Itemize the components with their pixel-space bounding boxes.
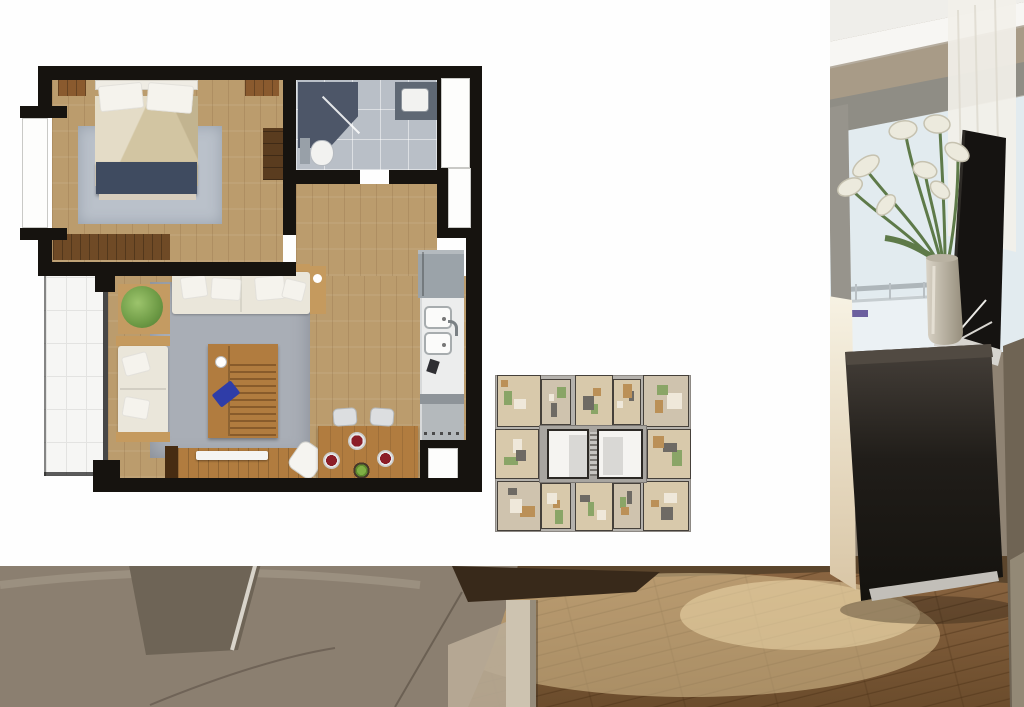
cooktop-knobs <box>424 432 460 435</box>
television <box>196 451 268 460</box>
loveseat-pillow <box>121 396 150 420</box>
wall-top <box>38 66 480 80</box>
sofa-pillow <box>210 277 241 301</box>
salad-bowl <box>353 462 370 479</box>
key-plan-furniture <box>672 450 681 465</box>
key-plan-furniture <box>580 495 590 503</box>
key-plan-furniture <box>623 384 631 397</box>
key-plan-unit <box>613 379 641 425</box>
key-plan-furniture <box>663 443 678 452</box>
key-plan-furniture <box>547 493 557 504</box>
vase-mouth <box>926 254 958 262</box>
key-plan-furniture <box>664 493 678 503</box>
key-plan-unit-room <box>569 435 587 477</box>
key-plan-furniture <box>593 388 601 395</box>
wall-left-upper <box>38 66 52 106</box>
bedroom-window <box>22 118 48 228</box>
toilet-bowl <box>310 140 334 166</box>
key-plan-stairs <box>590 432 597 476</box>
cabinet-shadow <box>840 596 1020 624</box>
dinner-plate <box>323 452 340 469</box>
wall-bath-bottom <box>389 170 437 184</box>
balcony-divider <box>103 276 108 476</box>
shaft-window <box>441 78 470 168</box>
key-plan-furniture <box>549 394 554 401</box>
key-plan-furniture <box>655 400 664 413</box>
wall-balcony-bottom-block <box>93 460 120 492</box>
key-plan-unit <box>541 483 571 529</box>
cooktop-strip <box>420 394 464 404</box>
coffee-table-slats <box>230 360 276 436</box>
side-table-cup <box>313 274 322 283</box>
key-plan-highlighted-unit <box>547 429 589 479</box>
key-plan-unit <box>643 375 689 427</box>
key-plan-unit <box>541 379 571 425</box>
key-plan-unit <box>643 481 689 531</box>
dresser <box>53 234 170 260</box>
dining-chair <box>332 407 357 427</box>
wall-bath-bottom <box>296 170 360 184</box>
dining-chair <box>369 407 394 427</box>
key-plan-furniture <box>551 403 557 417</box>
loveseat-cushion-gap <box>120 388 166 390</box>
key-plan-unit <box>497 481 541 531</box>
key-plan-furniture <box>597 510 606 521</box>
window-jamb <box>20 228 67 240</box>
bed-pillow <box>98 82 144 112</box>
toilet-tank <box>300 138 310 164</box>
key-plan-furniture <box>667 393 682 410</box>
bed-base <box>99 194 196 200</box>
balcony-floor <box>44 276 104 476</box>
loveseat-frame-top <box>116 336 170 346</box>
key-plan-furniture <box>501 380 508 387</box>
wall-bedroom-right <box>283 66 296 235</box>
collage-canvas <box>0 0 1024 707</box>
key-plan-furniture <box>657 385 668 395</box>
key-plan-unit <box>497 375 541 427</box>
nightstand <box>245 80 279 96</box>
key-plan-furniture <box>514 399 526 410</box>
wall-bedroom-bottom <box>38 262 296 276</box>
dinner-plate <box>348 432 366 450</box>
key-plan-unit <box>575 479 613 531</box>
key-plan-furniture <box>617 401 623 408</box>
key-plan-furniture <box>555 510 563 524</box>
dark-cabinet <box>845 344 1003 601</box>
key-plan-unit <box>575 375 613 429</box>
bed-bench <box>96 162 197 194</box>
dinner-plate <box>377 450 394 467</box>
vanity-sink <box>401 88 429 112</box>
key-plan-unit-room <box>603 437 623 475</box>
key-plan-units <box>495 375 691 532</box>
wall-right-mid <box>466 238 482 440</box>
key-plan-furniture <box>621 507 629 515</box>
key-plan-furniture <box>520 506 535 517</box>
coffee-table-cup <box>215 356 227 368</box>
faucet <box>448 320 458 336</box>
building-key-plan <box>495 375 691 532</box>
key-plan-furniture <box>627 491 631 505</box>
hallway-floor <box>296 184 437 276</box>
unit-floor-plan <box>15 62 482 492</box>
key-plan-furniture <box>508 488 518 495</box>
key-plan-furniture <box>651 500 659 507</box>
wall-bottom <box>100 478 482 492</box>
key-plan-furniture <box>504 391 512 405</box>
key-plan-furniture <box>653 436 664 448</box>
key-plan-furniture <box>588 502 594 516</box>
right-wall-lower <box>1010 552 1024 707</box>
key-plan-furniture <box>661 507 673 520</box>
loveseat-frame-bottom <box>116 432 170 442</box>
wall-balcony-top-block <box>95 262 115 292</box>
fridge <box>418 250 464 298</box>
window-jamb <box>20 106 67 118</box>
key-plan-unit <box>495 429 539 479</box>
vase-highlight <box>933 266 934 334</box>
key-plan-unit <box>613 483 641 529</box>
key-plan-furniture <box>510 499 521 513</box>
balcony-bench <box>852 310 868 317</box>
table-leg-shade <box>530 600 538 707</box>
sideboard-end <box>165 446 178 480</box>
key-plan-furniture <box>557 387 565 398</box>
key-plan-unit <box>647 429 691 479</box>
key-plan-highlighted-unit <box>597 429 643 479</box>
shaft-window <box>448 168 471 228</box>
nightstand <box>58 80 86 96</box>
key-plan-furniture <box>583 396 594 410</box>
fridge-handle <box>422 252 424 296</box>
sofa-pillow <box>254 275 286 302</box>
sofa-pillow <box>180 274 209 299</box>
bed-pillow <box>146 82 194 114</box>
key-plan-furniture <box>516 450 527 461</box>
potted-plant <box>121 286 163 328</box>
